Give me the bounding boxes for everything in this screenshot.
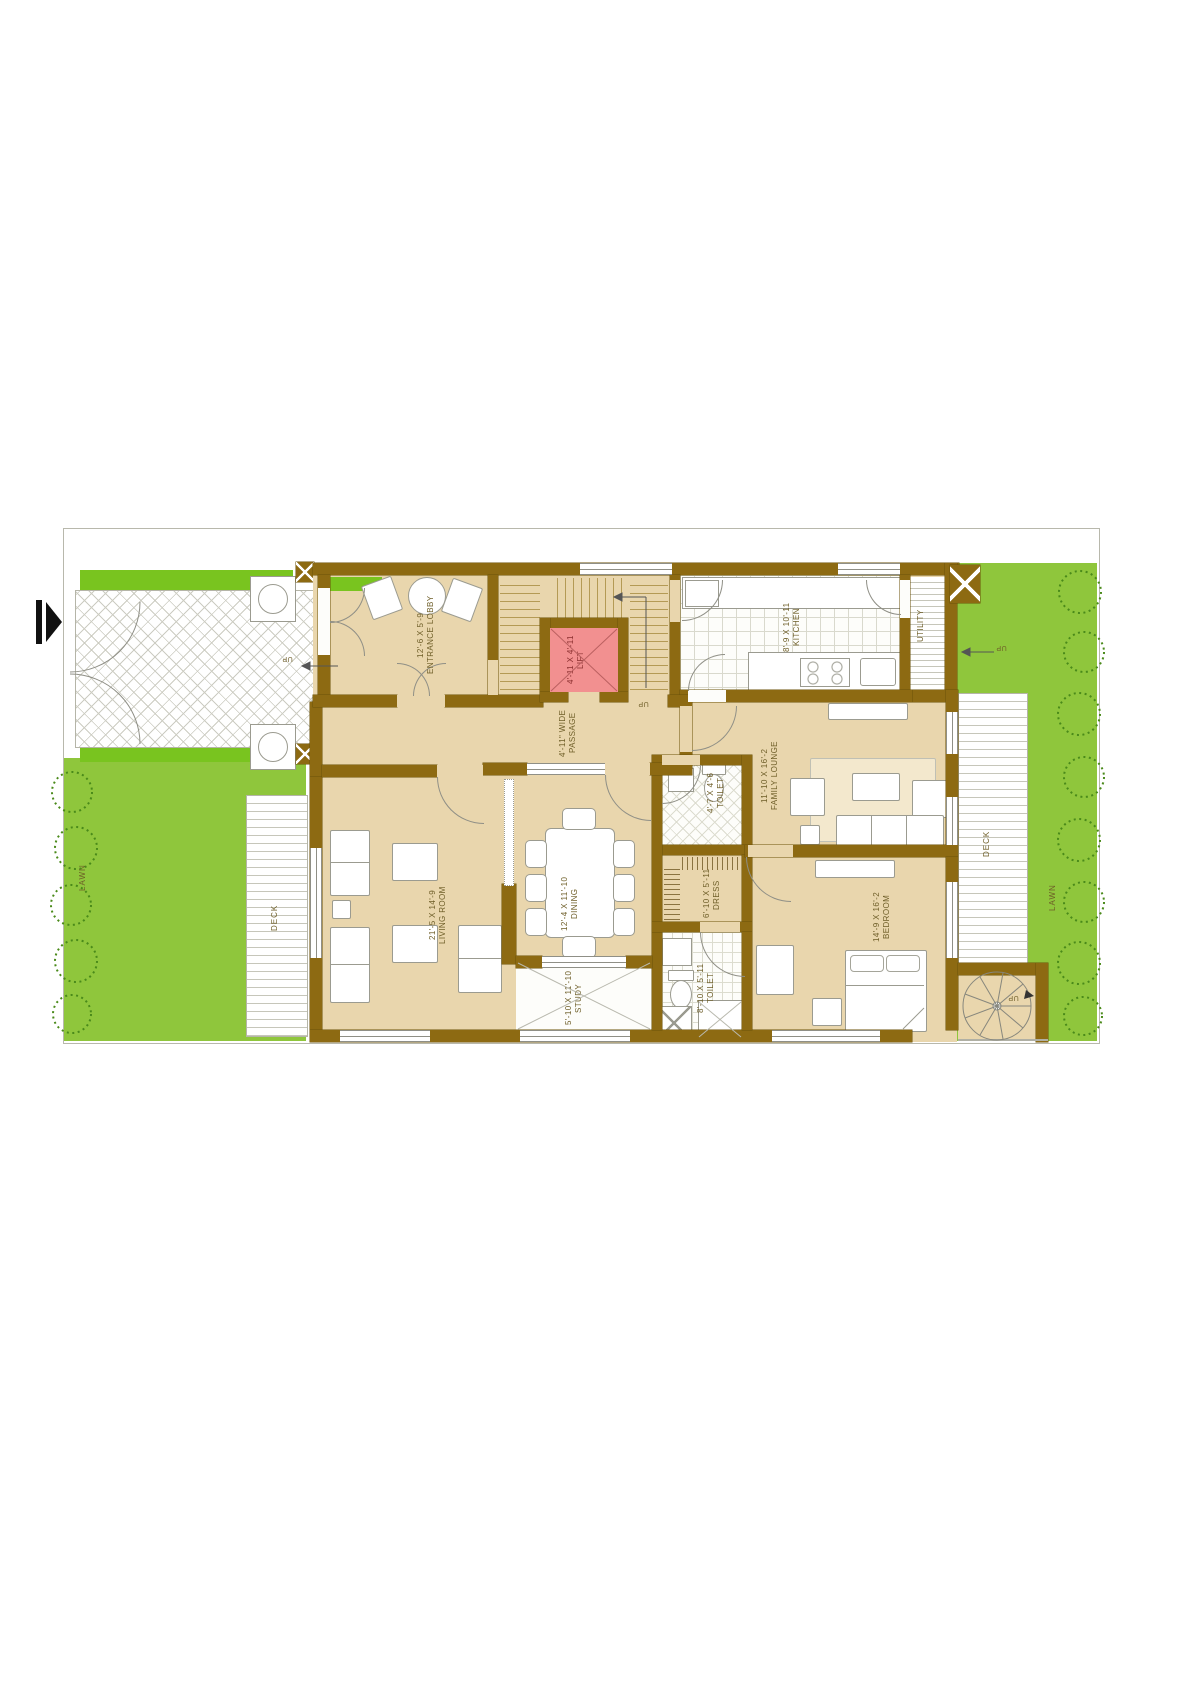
up-marker-spiral: UP: [1008, 994, 1019, 1001]
wall: [322, 765, 437, 777]
room-dim: 4'-11" WIDE: [558, 704, 568, 762]
living-dining-rail: [504, 779, 514, 886]
kitchen-stove: [800, 658, 850, 687]
window: [946, 712, 958, 754]
living-corner-table: [332, 900, 351, 919]
family-armchair: [912, 780, 947, 818]
label-lawn-left: LAWN: [78, 856, 88, 900]
room-dim: 6'-10 X 5'-11: [702, 872, 712, 918]
window: [527, 763, 605, 775]
wall: [652, 845, 752, 855]
living-sofa: [330, 927, 370, 1003]
room-label-bedroom: 14'-9 X 16'-2 BEDROOM: [872, 888, 892, 946]
dining-table: [545, 828, 615, 938]
bed-sheet-line: [846, 985, 924, 986]
deck-label: DECK: [270, 900, 280, 936]
room-name: STUDY: [574, 970, 584, 1026]
room-dim: 21'-5 X 14'-9: [428, 884, 438, 946]
bedroom-side-table: [812, 998, 842, 1026]
room-dim: 4'-11 X 4'-11: [566, 634, 576, 686]
room-dim: 5'-10 X 11'-10: [564, 970, 574, 1026]
window: [520, 1030, 630, 1042]
spiral-terrace-edge: [958, 1039, 1048, 1041]
deck-right: [958, 693, 1028, 971]
family-tv-console: [828, 703, 908, 720]
stair-flight-left: [500, 578, 540, 694]
room-label-dining: 12'-4 X 11'-10 DINING: [560, 876, 580, 932]
door-opening: [900, 580, 910, 618]
door-opening: [700, 922, 740, 932]
bed-pillow: [850, 955, 884, 972]
window: [340, 1030, 430, 1042]
wall: [502, 884, 516, 964]
door-opening: [748, 845, 793, 857]
lift-wall: [600, 692, 628, 702]
wall: [626, 956, 652, 968]
washbasin: [662, 938, 692, 966]
window: [838, 563, 900, 575]
room-label-family-lounge: 11'-10 X 16'-2 FAMILY LOUNGE: [760, 740, 780, 812]
wall: [516, 956, 542, 968]
room-name: LIVING ROOM: [438, 884, 448, 946]
up-marker-stairs: UP: [638, 700, 649, 707]
room-label-living-room: 21'-5 X 14'-9 LIVING ROOM: [428, 884, 448, 946]
wardrobe: [682, 857, 740, 870]
room-label-study: 5'-10 X 11'-10 STUDY: [564, 970, 584, 1026]
door-opening: [662, 755, 700, 765]
window: [580, 563, 672, 575]
lawn-label: LAWN: [78, 856, 88, 900]
stair-landing-treads: [550, 578, 628, 618]
wc-bowl: [670, 980, 692, 1009]
door-opening: [437, 765, 483, 777]
deck-label: DECK: [982, 826, 992, 862]
room-label-utility: UTILITY: [916, 600, 926, 652]
porch-column-circle: [258, 584, 288, 614]
stair-flight-right: [630, 578, 668, 694]
room-name: DINING: [570, 876, 580, 932]
lift-wall: [540, 692, 568, 702]
room-name: UTILITY: [916, 600, 926, 652]
up-marker-utility: UP: [996, 644, 1007, 651]
room-dim: 12'-6 X 5'-9: [416, 596, 426, 674]
door-opening: [397, 695, 445, 707]
room-name: TOILET: [706, 962, 716, 1014]
kitchen-sink: [860, 658, 896, 686]
window: [310, 848, 322, 958]
room-name: PASSAGE: [568, 704, 578, 762]
room-name: BEDROOM: [882, 888, 892, 946]
door-opening: [318, 588, 330, 655]
room-dim: 8'-10 X 5'-11: [696, 962, 706, 1014]
room-label-dress: 6'-10 X 5'-11 DRESS: [702, 872, 722, 918]
utility-pier-x: [950, 565, 980, 603]
label-deck-left: DECK: [270, 900, 280, 936]
room-name: DRESS: [712, 872, 722, 918]
door-opening: [680, 706, 692, 752]
room-dim: 8'-9 X 10'-11: [782, 596, 792, 658]
lift-wall: [540, 618, 550, 702]
wall: [958, 963, 1048, 975]
wall: [310, 702, 322, 777]
study-floor: [516, 962, 652, 1030]
dining-chair: [525, 874, 547, 902]
family-armchair: [790, 778, 825, 816]
family-coffee-table: [852, 773, 900, 801]
room-dim: 14'-9 X 16'-2: [872, 888, 882, 946]
wall: [742, 755, 752, 855]
bedroom-dresser: [815, 860, 895, 878]
room-label-entrance-lobby: 12'-6 X 5'-9 ENTRANCE LOBBY: [416, 596, 436, 674]
living-sofa: [330, 830, 370, 896]
entry-arrow-icon: [36, 600, 62, 644]
door-opening: [488, 660, 498, 695]
room-label-toilet-2: 8'-10 X 5'-11 TOILET: [696, 962, 716, 1014]
room-dim: 11'-10 X 16'-2: [760, 740, 770, 812]
room-label-toilet-1: 4'-7 X 4'-6 TOILET: [706, 768, 726, 818]
family-side-table: [800, 825, 820, 845]
living-sofa: [458, 925, 502, 993]
porch-column-circle: [258, 732, 288, 762]
label-deck-right: DECK: [982, 826, 992, 862]
wall: [483, 763, 527, 775]
label-lawn-right: LAWN: [1048, 876, 1058, 920]
room-dim: 12'-4 X 11'-10: [560, 876, 570, 932]
door-opening: [670, 580, 680, 622]
room-name: ENTRANCE LOBBY: [426, 596, 436, 674]
room-name: TOILET: [716, 768, 726, 818]
room-name: KITCHEN: [792, 596, 802, 658]
wall: [652, 755, 662, 1030]
door-opening: [688, 690, 726, 702]
dining-chair: [562, 808, 596, 830]
room-dim: 4'-7 X 4'-6: [706, 768, 716, 818]
living-center-table: [392, 843, 438, 881]
lift-wall: [618, 618, 628, 702]
bedroom-chair: [756, 945, 794, 995]
window: [946, 882, 958, 958]
dining-chair: [613, 840, 635, 868]
room-label-kitchen: 8'-9 X 10'-11 KITCHEN: [782, 596, 802, 658]
bed-pillow: [886, 955, 920, 972]
wall-pier-x: [296, 562, 314, 582]
room-label-passage: 4'-11" WIDE PASSAGE: [558, 704, 578, 762]
lift-wall: [540, 618, 628, 628]
dining-chair: [613, 874, 635, 902]
floor-plan-canvas: 12'-6 X 5'-9 ENTRANCE LOBBY 4'-11" WIDE …: [0, 0, 1200, 1697]
room-name: FAMILY LOUNGE: [770, 740, 780, 812]
dining-chair: [525, 908, 547, 936]
lawn-label: LAWN: [1048, 876, 1058, 920]
door-opening: [605, 763, 650, 775]
room-name: LIFT: [576, 634, 586, 686]
dining-chair: [613, 908, 635, 936]
wall: [313, 695, 397, 707]
spiral-terrace-floor: [958, 975, 1036, 1040]
window: [772, 1030, 880, 1042]
window: [542, 956, 626, 968]
wardrobe: [664, 868, 680, 920]
dining-chair: [525, 840, 547, 868]
up-marker-driveway: UP: [282, 655, 293, 662]
window: [946, 797, 958, 845]
wall: [1036, 963, 1048, 1042]
room-label-lift: 4'-11 X 4'-11 LIFT: [566, 634, 586, 686]
wall: [445, 695, 543, 707]
dining-chair: [562, 936, 596, 958]
